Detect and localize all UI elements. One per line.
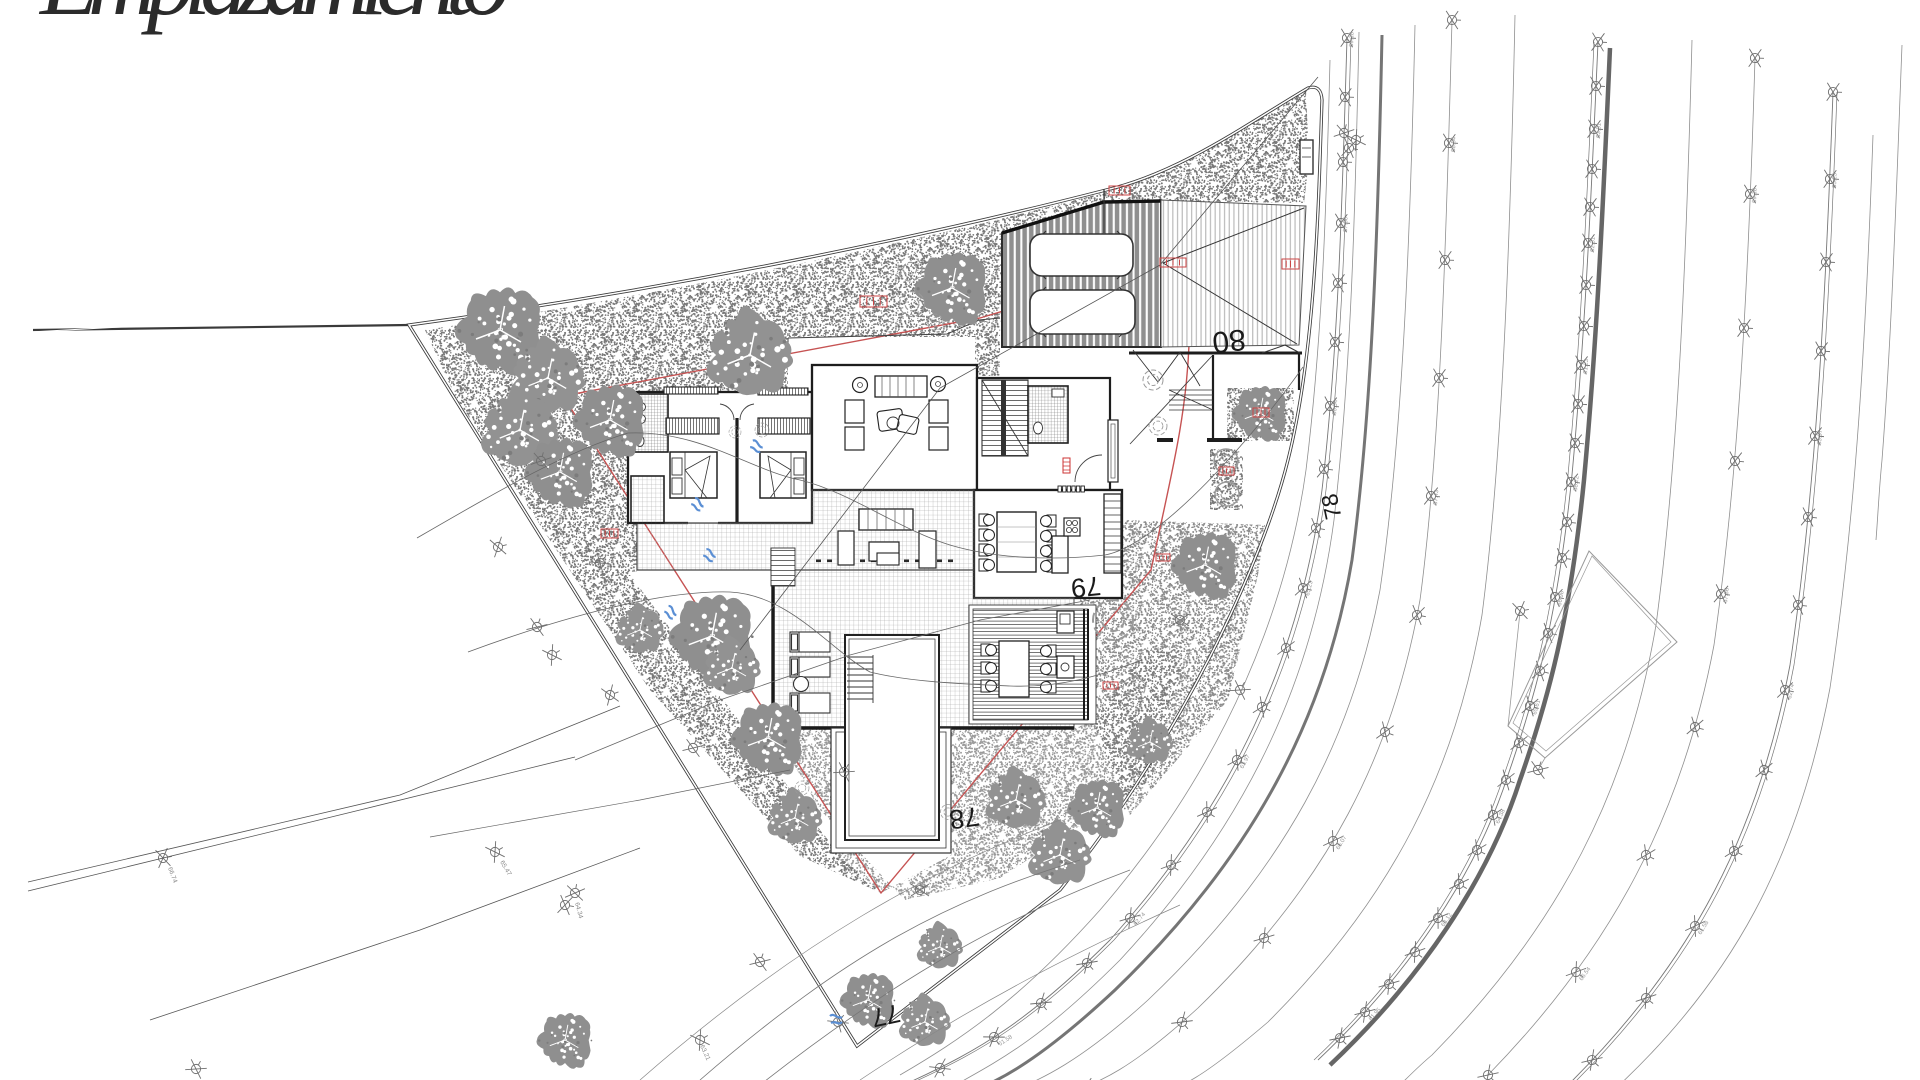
svg-text:78: 78 — [947, 801, 981, 835]
svg-text:80: 80 — [1211, 322, 1248, 358]
svg-text:78: 78 — [1316, 491, 1347, 521]
svg-text:65.23: 65.23 — [1832, 172, 1839, 188]
svg-text:79: 79 — [1069, 570, 1102, 603]
svg-text:63.51: 63.51 — [1596, 122, 1603, 138]
svg-text:62.31: 62.31 — [1590, 236, 1597, 252]
svg-text:63.97: 63.97 — [1817, 429, 1824, 445]
svg-text:Emplazamiento: Emplazamiento — [38, 0, 510, 35]
svg-text:68.54: 68.54 — [1451, 136, 1458, 152]
svg-text:69.18: 69.18 — [1752, 187, 1759, 203]
svg-text:69.18: 69.18 — [1349, 31, 1356, 47]
svg-text:61.23: 61.23 — [1583, 358, 1590, 374]
svg-text:67.86: 67.86 — [1343, 216, 1350, 232]
svg-text:77: 77 — [869, 998, 904, 1033]
